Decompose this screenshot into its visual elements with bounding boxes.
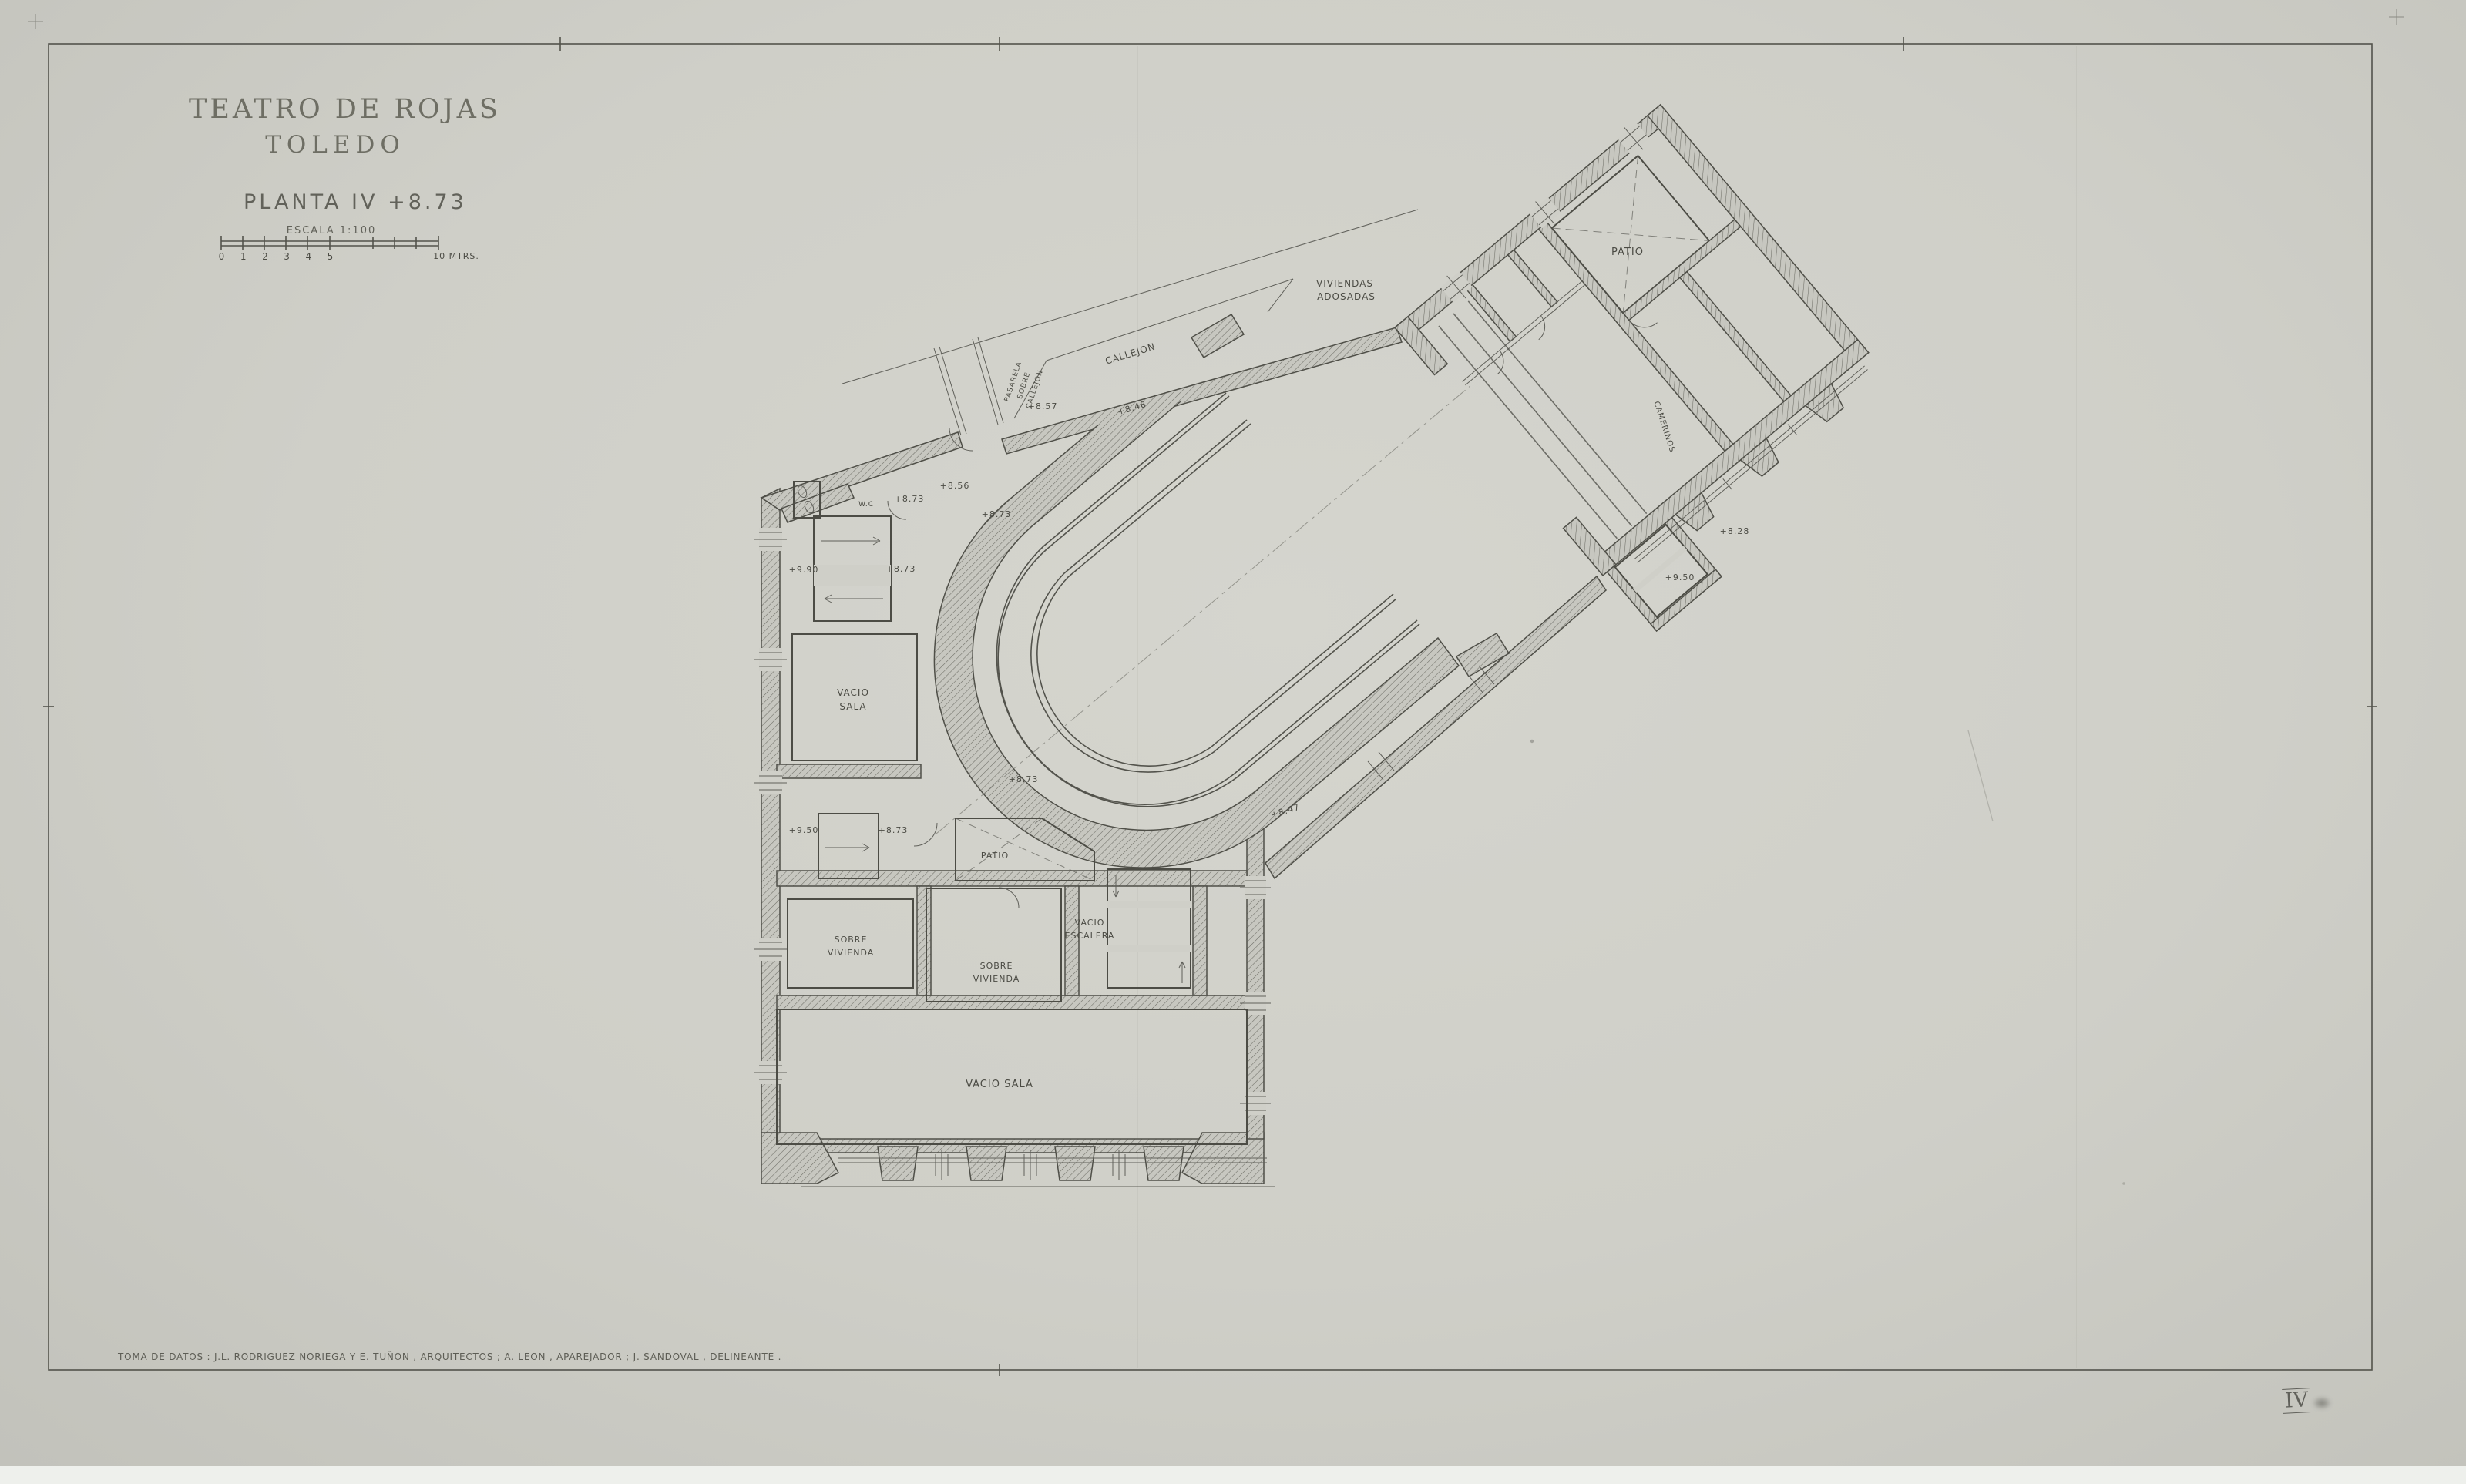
proscenium-jamb [1564,517,1616,575]
street-context [842,210,1418,435]
plan-label: PATIO [1611,247,1644,258]
plan-label: VACIO [837,687,869,698]
window-icon [1240,876,1271,899]
plan-label: +8.73 [879,825,909,835]
door-swing-arc [1487,261,1658,423]
plan-label: +8.56 [940,481,970,491]
partition [1065,886,1079,995]
pasarela-lines [934,337,1003,435]
scale-tick-number: 2 [262,251,269,262]
facade-pilaster [966,1147,1006,1180]
stage-floor-lines [1439,301,1647,539]
wing-east-wall [1648,105,1869,364]
wing-facade-bays [1629,360,1876,573]
plan-label: +8.28 [1720,526,1750,536]
window-icon [1240,992,1271,1015]
partition [1193,886,1207,995]
registration-cross [2389,9,2404,25]
window-icon [1240,1092,1271,1115]
window-icon [754,938,787,961]
horseshoe-balcony [934,333,1534,868]
credits-line: TOMA DE DATOS : J.L. RODRIGUEZ NORIEGA Y… [118,1351,781,1362]
door-swing-arc [914,823,937,846]
proscenium-pier-north [1191,314,1244,358]
stair-west [818,814,879,878]
plan-label: VIVIENDA [973,974,1020,984]
plan-label: CALLEJON [1104,341,1157,367]
partition [777,764,921,778]
sobre-vivienda-room-2 [926,888,1061,1002]
plan-label: +8.73 [982,509,1012,519]
facade-window [1113,1150,1125,1180]
scale-label: ESCALA 1:100 [254,225,408,237]
street-wall-west [761,432,963,510]
plan-level-subtitle: PLANTA IV +8.73 [244,190,467,214]
stairs [814,516,1191,988]
sheet-number: IV [2282,1388,2311,1414]
wing-room-partition [1680,272,1791,402]
plan-label: +8.73 [895,494,925,504]
plan-label: +9.90 [789,565,819,575]
window-icon [754,528,787,551]
scale-tick-number: 4 [305,251,312,262]
plan-label: VACIO [1075,918,1105,928]
plan-label: +8.73 [1009,774,1039,784]
scale-end-label: 10 MTRS. [433,251,479,261]
facade-window [936,1150,948,1180]
plan-label: ESCALERA [1065,931,1115,941]
plan-label: VIVIENDAS [1316,278,1373,289]
window-icon [754,648,787,671]
camerino-partition [1466,284,1516,341]
stage-wing [1391,100,1918,635]
ink-smudge [2312,1396,2332,1410]
drawing-title: TEATRO DE ROJAS [189,94,482,125]
floor-plan-svg: 01234510 MTRS. [0,0,2466,1484]
southeast-diagonal-wall [1265,576,1606,878]
plan-label: SOBRE [835,935,868,945]
window-icon [754,1061,787,1084]
plan-label: SOBRE [980,961,1013,971]
drawing-title-city: TOLEDO [189,131,482,159]
scale-tick-number: 0 [219,251,226,262]
scan-artifacts [1530,730,2125,1185]
plan-label: VACIO SALA [966,1079,1033,1090]
plan-label: +8.73 [886,564,916,574]
scale-bar [221,236,438,250]
right-wall [1247,817,1264,1139]
plan-label: PATIO [981,851,1009,861]
walls-orthogonal-block [761,314,1606,1187]
stair-vacio-escalera [1107,869,1191,988]
scale-numbers: 01234510 MTRS. [219,251,479,262]
plan-label: VIVIENDA [828,948,875,958]
door-swing-arc [999,888,1019,908]
vacio-sala-main-room [777,1009,1247,1144]
camerino-partition [1508,250,1557,307]
facade-pilaster [878,1147,918,1180]
plan-label: SALA [839,701,866,712]
stair-northwest [814,516,891,621]
plan-label: +9.50 [1665,572,1695,583]
wing-stair [1607,518,1722,631]
facade-window [1024,1150,1036,1180]
facade-pilaster [1144,1147,1184,1180]
drawing-scan: 01234510 MTRS. [0,0,2466,1484]
wing-room-partition [1623,220,1740,321]
plan-label: +8.57 [1028,401,1058,411]
window-icon [754,771,787,794]
plan-label: W.C. [858,501,877,509]
facade-pilaster [1055,1147,1095,1180]
plan-label: CAMERINOS [1651,401,1676,454]
partition [917,886,931,995]
plan-label: ADOSADAS [1317,291,1376,302]
wing-south-wall [1592,340,1869,576]
registration-cross [28,14,43,29]
scale-tick-number: 3 [284,251,291,262]
scale-tick-number: 1 [240,251,247,262]
plan-label: +9.50 [789,825,819,835]
scale-tick-number: 5 [328,251,334,262]
horseshoe-wall-band [934,347,1459,868]
